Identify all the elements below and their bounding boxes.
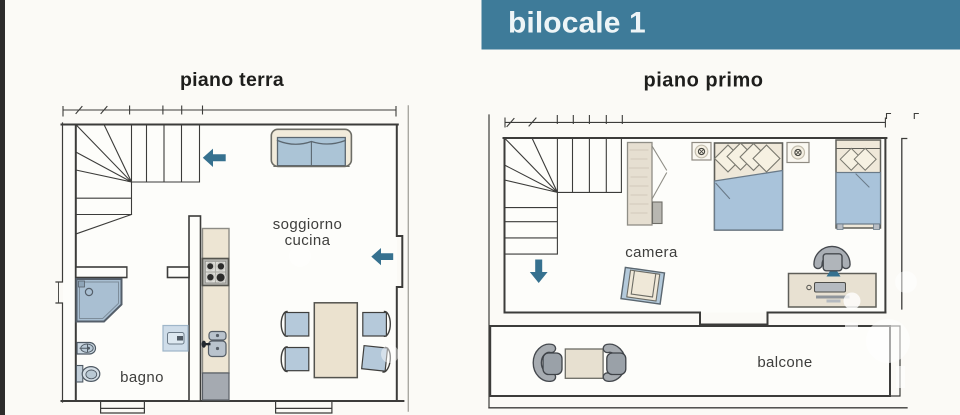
svg-text:cucina: cucina bbox=[285, 232, 331, 249]
svg-text:piano terra: piano terra bbox=[180, 69, 284, 91]
svg-text:camera: camera bbox=[625, 244, 678, 261]
svg-text:piano primo: piano primo bbox=[644, 70, 764, 92]
svg-text:balcone: balcone bbox=[757, 354, 812, 371]
svg-text:bagno: bagno bbox=[120, 369, 164, 386]
svg-text:soggiorno: soggiorno bbox=[273, 216, 342, 233]
svg-text:bilocale 1: bilocale 1 bbox=[508, 7, 646, 40]
